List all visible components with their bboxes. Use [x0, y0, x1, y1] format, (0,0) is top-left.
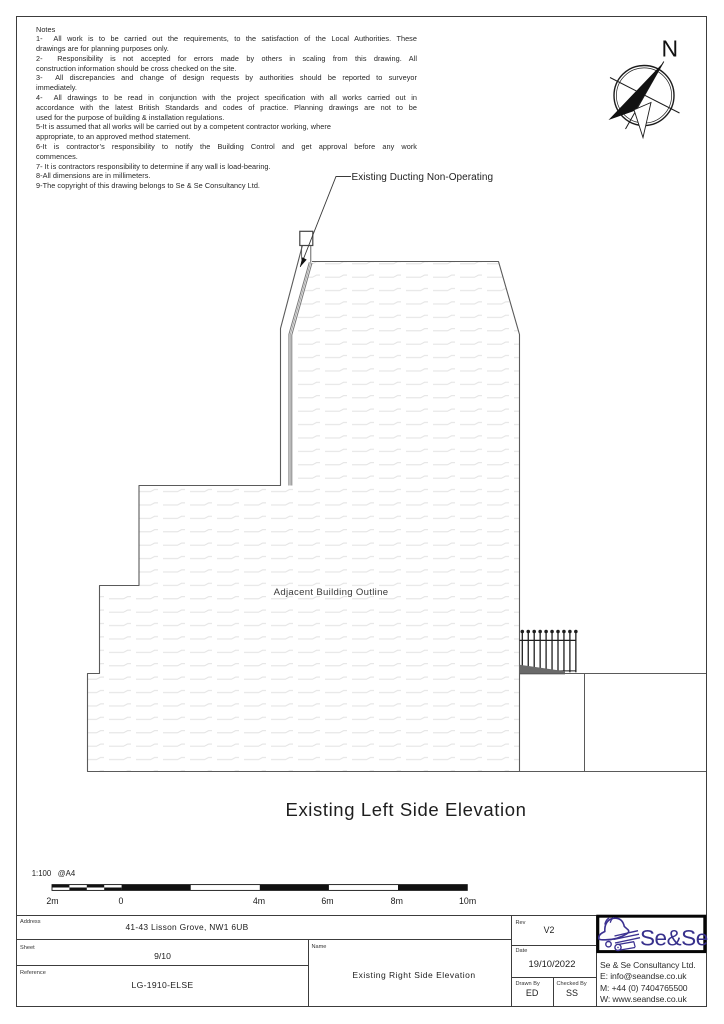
svg-text:Se&Se: Se&Se [640, 926, 708, 951]
